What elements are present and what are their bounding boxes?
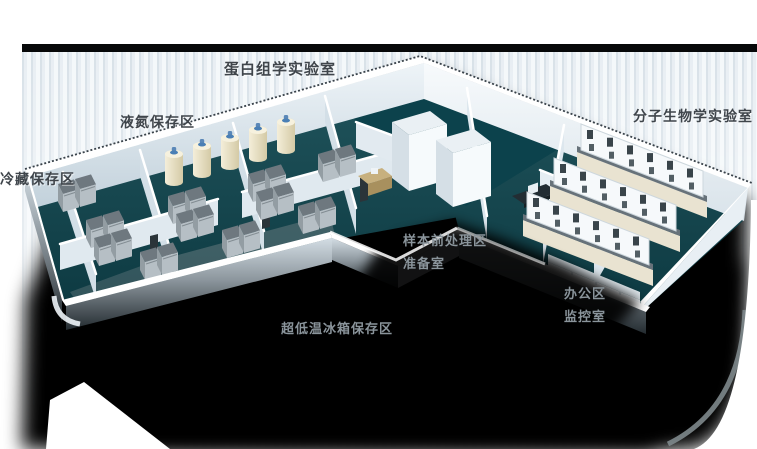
label-sample-prep: 样本前处理区 准备室 [403,230,487,276]
label-ln2-storage: 液氮保存区 [120,112,195,132]
label-office-line1: 办公区 [564,283,606,306]
isometric-lab-rendering [0,0,757,449]
label-sample-prep-line1: 样本前处理区 [403,230,487,253]
label-office-line2: 监控室 [564,306,606,329]
label-proteomics-lab: 蛋白组学实验室 [224,58,336,79]
label-molecular-biology-lab: 分子生物学实验室 [633,106,753,126]
label-ult-freezer-storage: 超低温冰箱保存区 [281,318,393,337]
label-office: 办公区 监控室 [564,283,606,329]
label-cold-storage: 冷藏保存区 [0,169,75,189]
lab-floorplan-figure: 蛋白组学实验室 液氮保存区 冷藏保存区 分子生物学实验室 样本前处理区 准备室 … [0,0,757,449]
label-sample-prep-line2: 准备室 [403,253,487,276]
